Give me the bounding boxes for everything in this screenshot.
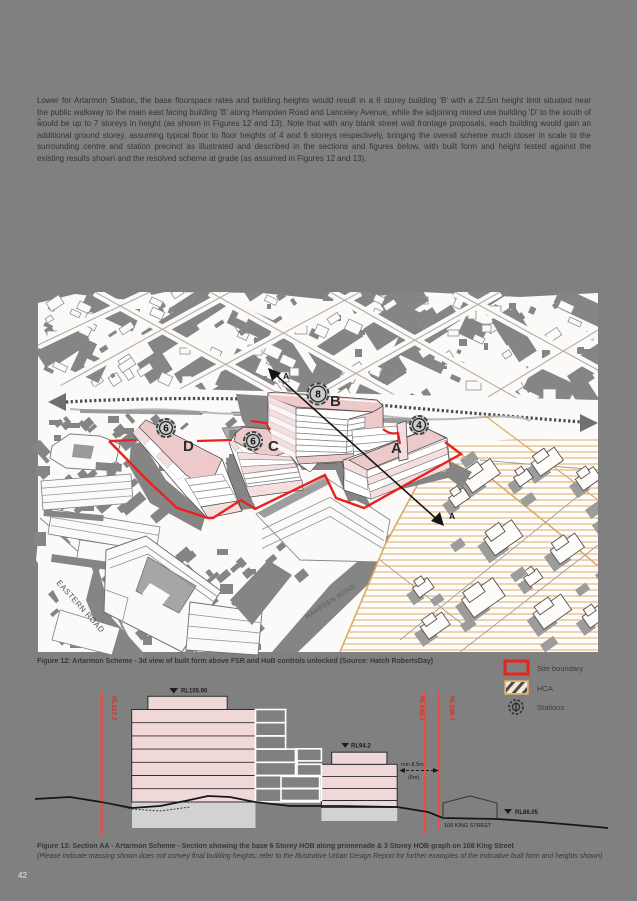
svg-text:8: 8 bbox=[315, 390, 321, 401]
svg-text:RL105.90: RL105.90 bbox=[181, 689, 208, 695]
svg-text:RL103.7: RL103.7 bbox=[418, 696, 425, 721]
svg-text:Stations: Stations bbox=[537, 703, 564, 712]
svg-text:4: 4 bbox=[416, 421, 422, 432]
svg-text:RL86.05: RL86.05 bbox=[515, 810, 539, 816]
svg-text:A: A bbox=[449, 511, 455, 521]
svg-text:D: D bbox=[183, 438, 194, 455]
svg-text:6: 6 bbox=[250, 437, 256, 448]
svg-text:A: A bbox=[391, 440, 402, 457]
svg-text:C: C bbox=[268, 438, 279, 455]
svg-text:(6m): (6m) bbox=[408, 775, 419, 781]
svg-text:HCA: HCA bbox=[537, 684, 553, 693]
svg-text:6: 6 bbox=[163, 424, 169, 435]
svg-text:RL100.7: RL100.7 bbox=[448, 696, 455, 721]
svg-text:Site boundary: Site boundary bbox=[537, 664, 584, 673]
svg-text:min 8.5m: min 8.5m bbox=[401, 762, 424, 768]
svg-text:RL117.7: RL117.7 bbox=[110, 696, 117, 721]
svg-text:A: A bbox=[283, 371, 289, 381]
svg-text:108 KING STREET: 108 KING STREET bbox=[444, 823, 492, 829]
svg-text:B: B bbox=[330, 393, 341, 410]
svg-text:RL94.2: RL94.2 bbox=[351, 744, 371, 750]
